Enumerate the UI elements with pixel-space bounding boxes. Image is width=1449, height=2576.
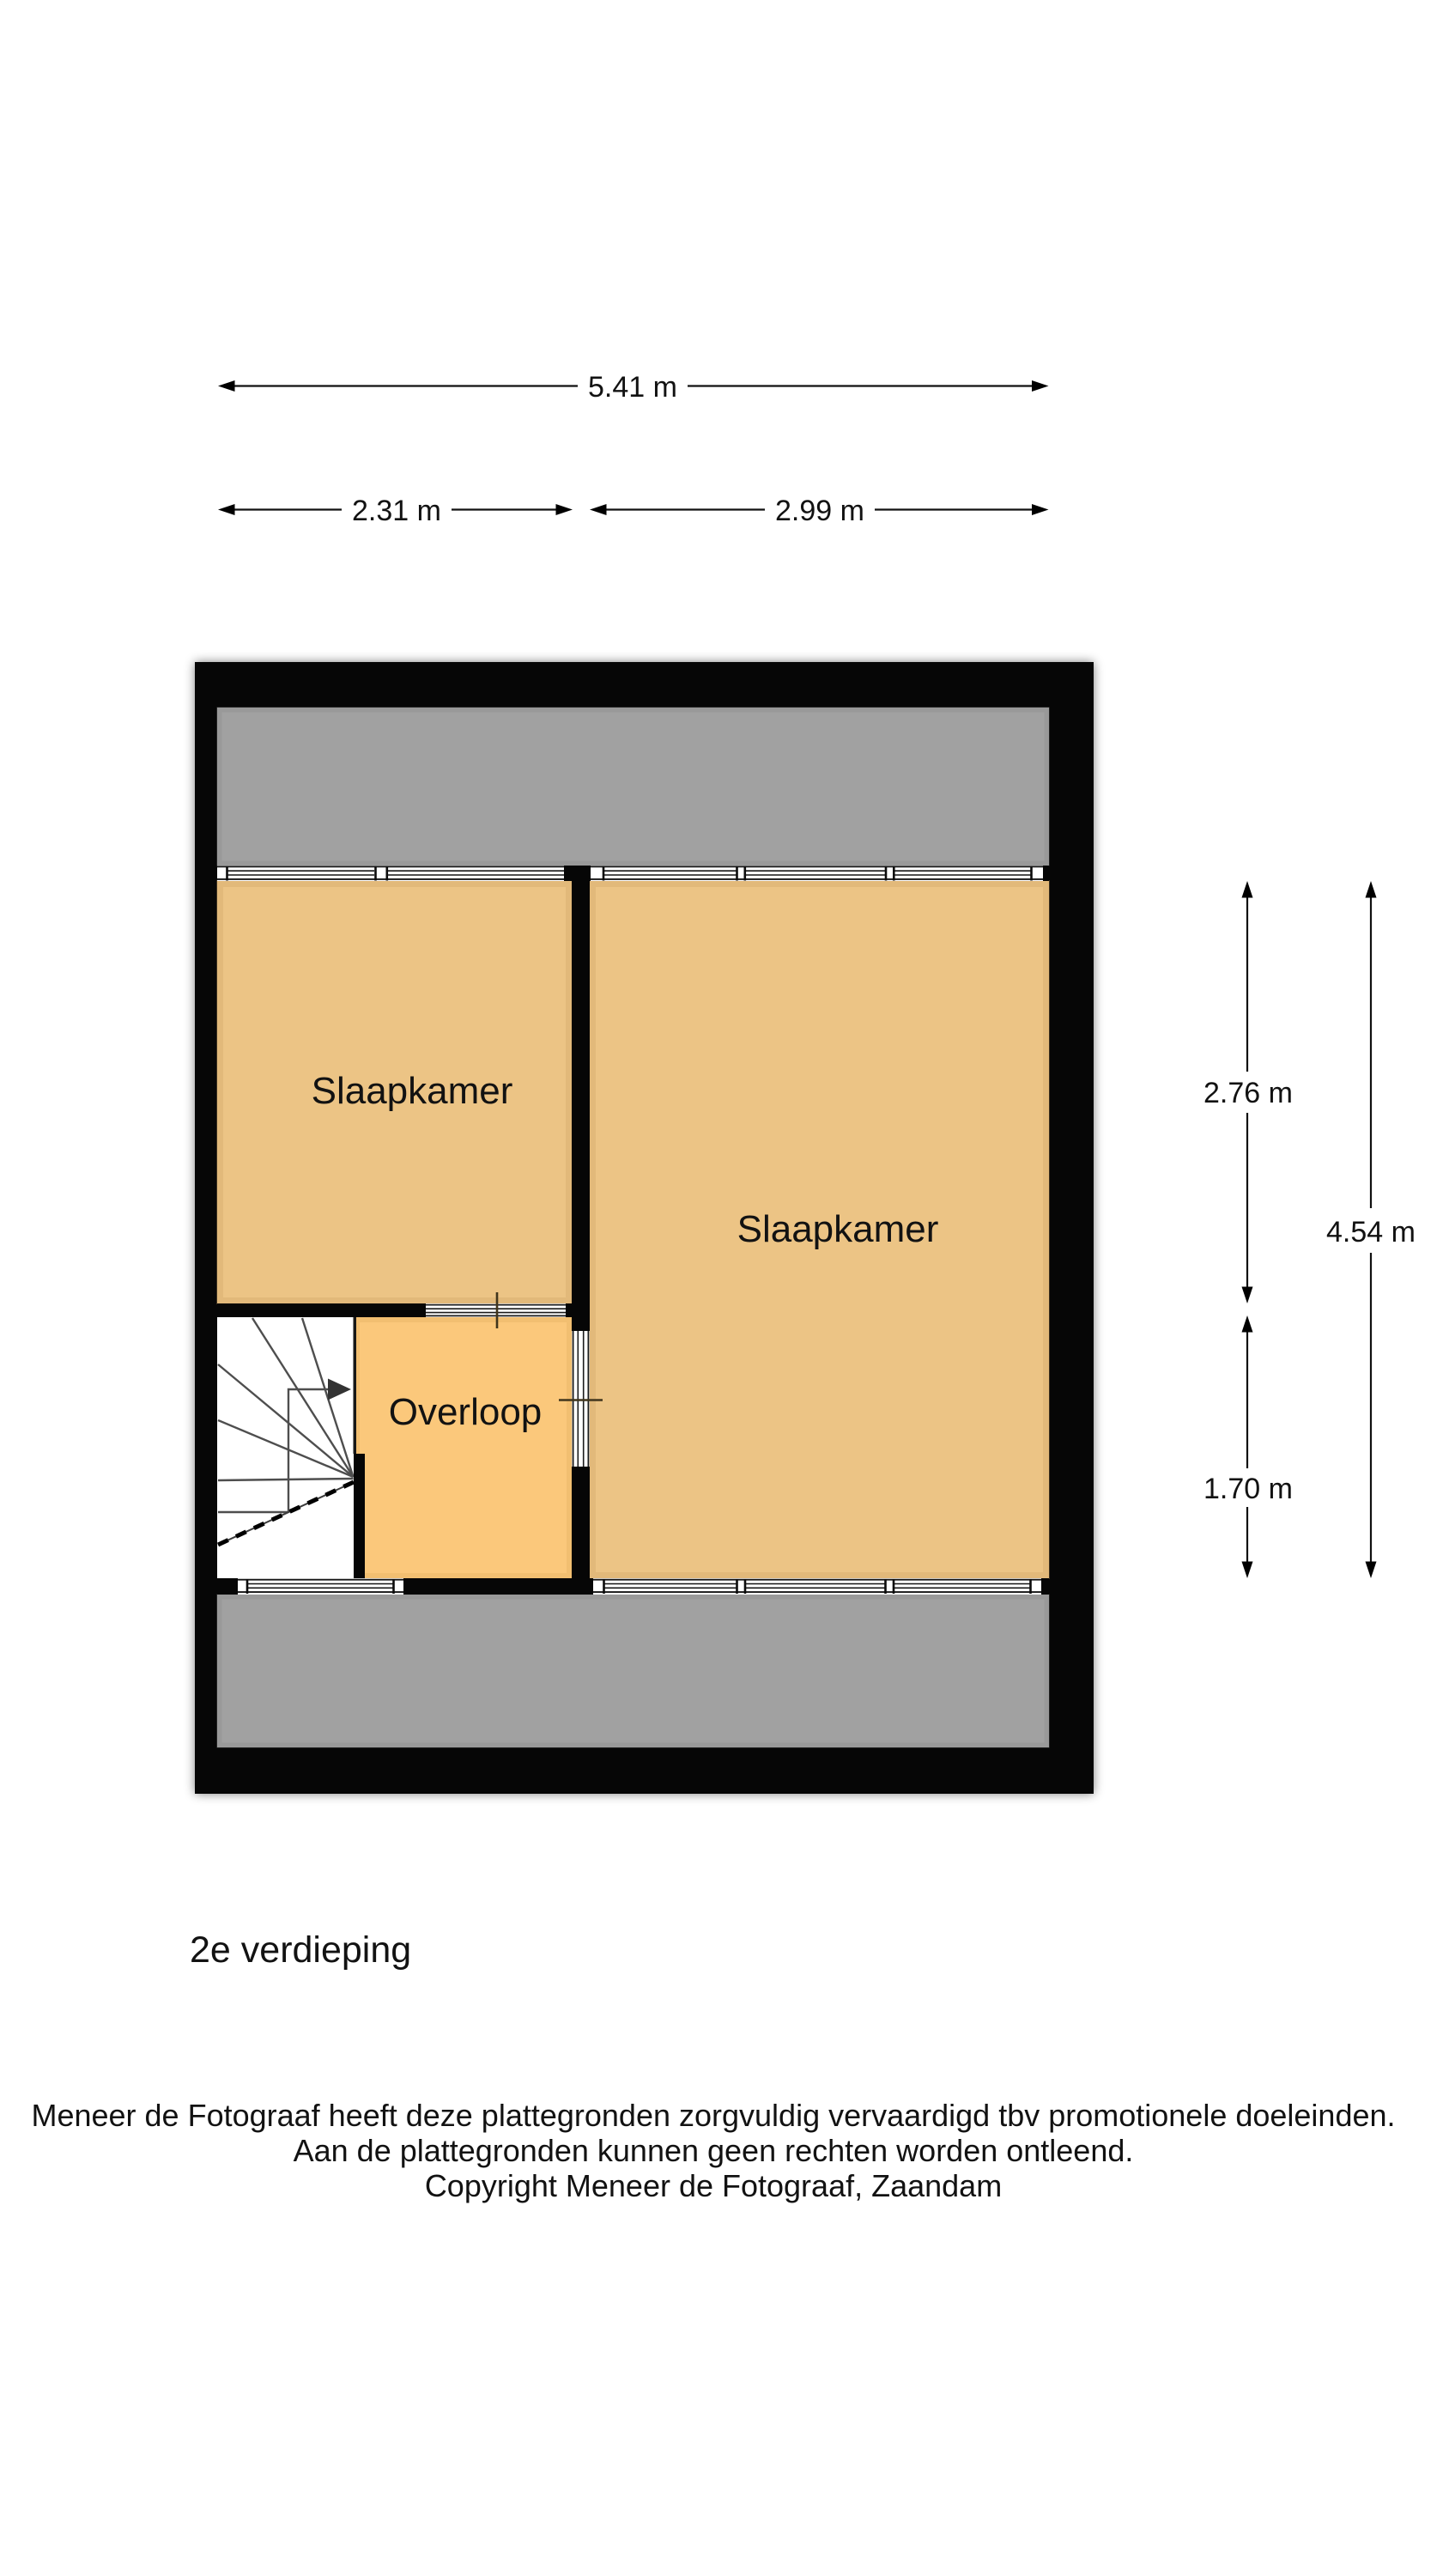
svg-text:2e verdieping: 2e verdieping — [190, 1929, 411, 1971]
svg-text:Aan de plattegronden kunnen ge: Aan de plattegronden kunnen geen rechten… — [294, 2133, 1134, 2168]
svg-text:Overloop: Overloop — [389, 1391, 543, 1433]
svg-text:Slaapkamer: Slaapkamer — [737, 1208, 939, 1250]
svg-text:1.70 m: 1.70 m — [1203, 1473, 1293, 1505]
svg-text:2.99 m: 2.99 m — [775, 495, 864, 527]
svg-text:4.54 m: 4.54 m — [1326, 1216, 1416, 1249]
svg-text:Meneer de Fotograaf heeft deze: Meneer de Fotograaf heeft deze plattegro… — [31, 2098, 1395, 2133]
svg-text:2.31 m: 2.31 m — [352, 495, 441, 527]
svg-text:Copyright Meneer de Fotograaf,: Copyright Meneer de Fotograaf, Zaandam — [425, 2168, 1002, 2203]
svg-text:5.41 m: 5.41 m — [588, 371, 677, 404]
svg-text:Slaapkamer: Slaapkamer — [312, 1070, 513, 1112]
svg-text:2.76 m: 2.76 m — [1203, 1077, 1293, 1109]
